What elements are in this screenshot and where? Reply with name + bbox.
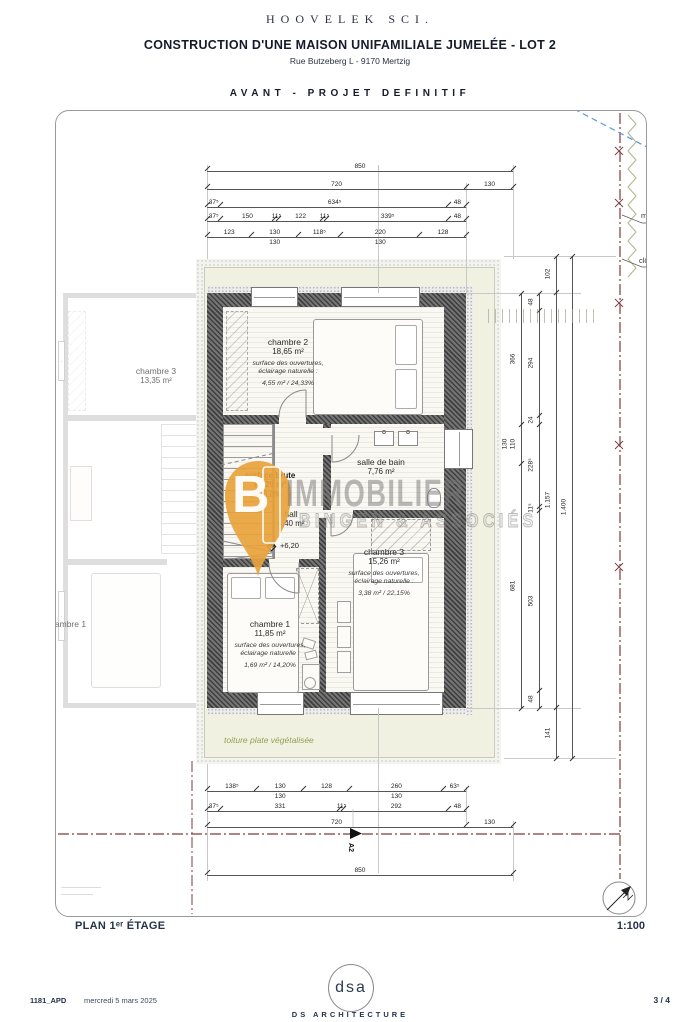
client-name: HOOVELEK SCI. [0, 12, 700, 27]
boundary-wall-label: mur [641, 211, 647, 220]
page-number: 3 / 4 [653, 995, 670, 1005]
watermark-letter: B [232, 466, 270, 524]
faint-site-line [61, 887, 101, 888]
architect-logo: dsa [328, 964, 374, 1012]
watermark-brand: IMMOBILIER [286, 473, 465, 516]
section-marker-triangle [350, 828, 362, 839]
blue-reference-line [574, 111, 646, 155]
north-arrow-icon [603, 882, 635, 914]
plan-title: PLAN 1ᵉʳ ÉTAGE [75, 920, 165, 932]
hedge-row [488, 309, 600, 323]
document-date: mercredi 5 mars 2025 [84, 996, 157, 1005]
faint-site-line [61, 894, 93, 895]
boundary-fence-label: clôture [639, 256, 647, 265]
project-address: Rue Butzeberg L - 9170 Mertzig [0, 56, 700, 66]
plan-sheet-page: HOOVELEK SCI. CONSTRUCTION D'UNE MAISON … [0, 0, 700, 1022]
plan-scale: 1:100 [617, 920, 645, 932]
project-title: CONSTRUCTION D'UNE MAISON UNIFAMILIALE J… [0, 38, 700, 52]
architect-firm: DS ARCHITECTURE [0, 1010, 700, 1019]
project-phase: AVANT - PROJET DEFINITIF [0, 88, 700, 99]
boundary-cross-marks [615, 147, 623, 571]
section-marker-label: A2 [347, 843, 354, 852]
watermark-subbrand: BINGEN & ASSOCIÉS [299, 511, 538, 533]
drawing-sheet: chambre 3 13,35 m² chambre 1 [55, 110, 647, 917]
document-reference: 1181_APD [30, 996, 66, 1005]
